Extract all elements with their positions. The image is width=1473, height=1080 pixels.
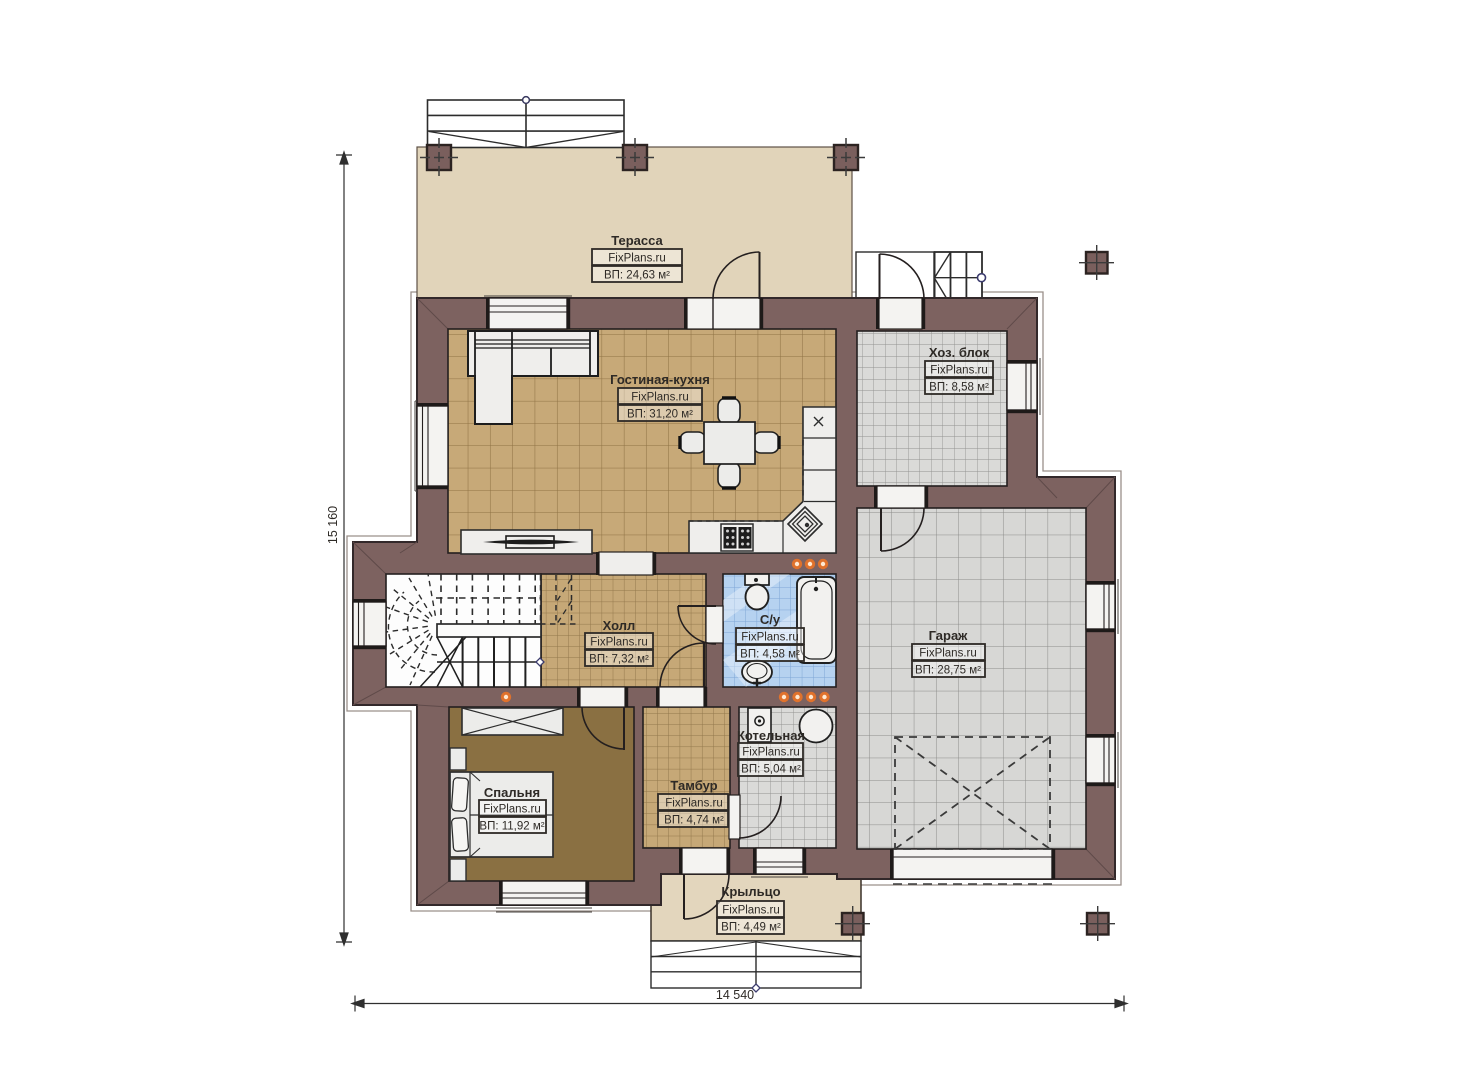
svg-text:Хоз. блок: Хоз. блок — [929, 345, 990, 360]
svg-text:Гараж: Гараж — [929, 628, 969, 643]
svg-text:ВП: 4,49 м²: ВП: 4,49 м² — [721, 922, 781, 934]
svg-text:ВП: 28,75 м²: ВП: 28,75 м² — [915, 665, 981, 677]
svg-text:Крыльцо: Крыльцо — [721, 884, 780, 899]
svg-text:Терасса: Терасса — [611, 233, 663, 248]
svg-text:14 540: 14 540 — [716, 988, 754, 1002]
svg-text:FixPlans.ru: FixPlans.ru — [631, 392, 689, 404]
svg-text:FixPlans.ru: FixPlans.ru — [608, 253, 666, 265]
svg-text:Тамбур: Тамбур — [670, 778, 717, 793]
svg-text:FixPlans.ru: FixPlans.ru — [722, 905, 780, 917]
svg-text:FixPlans.ru: FixPlans.ru — [930, 365, 988, 377]
svg-text:С/у: С/у — [760, 612, 781, 627]
svg-text:FixPlans.ru: FixPlans.ru — [665, 798, 723, 810]
svg-text:ВП: 11,92 м²: ВП: 11,92 м² — [479, 821, 544, 833]
svg-text:ВП: 31,20 м²: ВП: 31,20 м² — [627, 409, 693, 421]
svg-text:FixPlans.ru: FixPlans.ru — [919, 648, 977, 660]
svg-text:FixPlans.ru: FixPlans.ru — [741, 632, 799, 644]
svg-text:Гостиная-кухня: Гостиная-кухня — [610, 372, 710, 387]
svg-text:ВП: 5,04 м²: ВП: 5,04 м² — [741, 764, 801, 776]
svg-text:FixPlans.ru: FixPlans.ru — [483, 804, 541, 816]
svg-text:FixPlans.ru: FixPlans.ru — [742, 747, 800, 759]
svg-text:FixPlans.ru: FixPlans.ru — [590, 637, 648, 649]
svg-text:ВП: 24,63 м²: ВП: 24,63 м² — [604, 270, 670, 282]
svg-text:ВП: 7,32 м²: ВП: 7,32 м² — [589, 654, 649, 666]
svg-text:Холл: Холл — [603, 618, 636, 633]
svg-text:Спальня: Спальня — [484, 785, 540, 800]
svg-text:Котельная: Котельная — [737, 728, 805, 743]
svg-text:ВП: 4,58 м²: ВП: 4,58 м² — [740, 649, 800, 661]
svg-text:ВП: 4,74 м²: ВП: 4,74 м² — [664, 815, 724, 827]
svg-text:15 160: 15 160 — [326, 506, 340, 544]
svg-text:ВП: 8,58 м²: ВП: 8,58 м² — [929, 382, 989, 394]
